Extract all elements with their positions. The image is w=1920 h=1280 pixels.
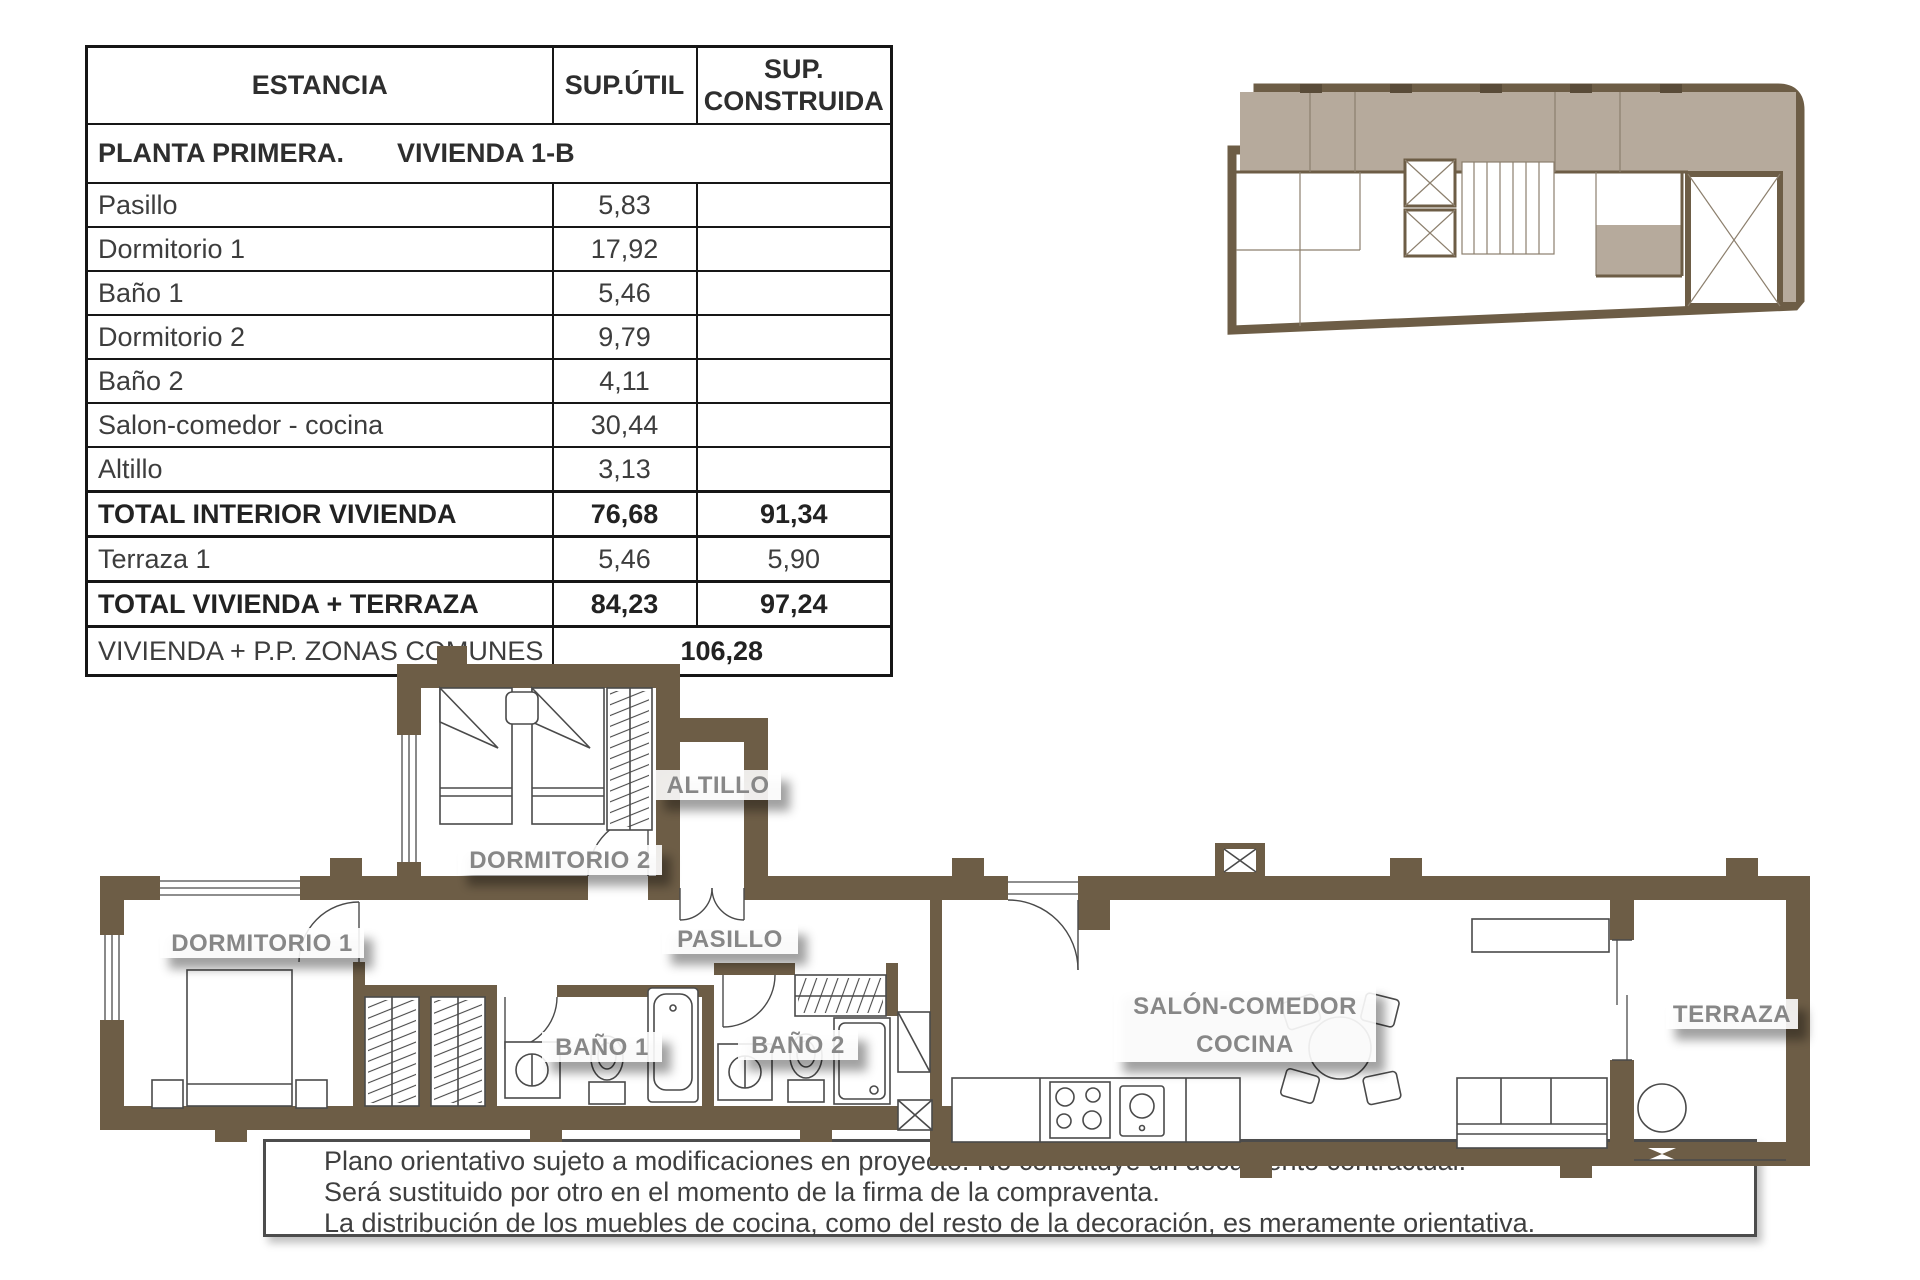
svg-text:BAÑO 1: BAÑO 1 [555, 1033, 649, 1061]
svg-text:COCINA: COCINA [1196, 1031, 1294, 1058]
svg-text:TERRAZA: TERRAZA [1673, 1001, 1791, 1028]
wardrobe-icon [607, 688, 652, 830]
svg-text:DORMITORIO 1: DORMITORIO 1 [171, 930, 353, 957]
key-plan [1232, 84, 1800, 330]
sofa-icon [1457, 1078, 1607, 1148]
pantry-cabinet-icon [898, 1012, 932, 1130]
window-icon [397, 735, 421, 862]
nightstand-icon [506, 692, 538, 724]
double-bed-icon [152, 970, 327, 1108]
floor-plan-drawing: DORMITORIO 1 DORMITORIO 2 ALTILLO PASILL… [0, 0, 1920, 1280]
room-label-terraza: TERRAZA [1666, 999, 1798, 1029]
vent-shaft-icon [1215, 843, 1265, 876]
room-label-dormitorio1: DORMITORIO 1 [160, 928, 364, 958]
courtyard-icon [1688, 174, 1780, 306]
linen-closet-icon [795, 975, 886, 1016]
room-label-salon: SALÓN-COMEDOR COCINA [1114, 986, 1376, 1062]
svg-text:BAÑO 2: BAÑO 2 [751, 1031, 845, 1059]
room-label-altillo: ALTILLO [655, 770, 781, 800]
svg-text:SALÓN-COMEDOR: SALÓN-COMEDOR [1133, 992, 1357, 1020]
floorplan-page: ESTANCIA SUP.ÚTIL SUP. CONSTRUIDA PLANTA… [0, 0, 1920, 1280]
key-plan-unit-highlight [1240, 92, 1796, 172]
washer-icon [1638, 1084, 1686, 1132]
single-bed-icon [440, 688, 512, 824]
door-icon-bano2 [723, 975, 775, 1027]
svg-text:PASILLO: PASILLO [677, 926, 783, 953]
kitchen-counter-icon [952, 1078, 1240, 1142]
window-icon [100, 935, 124, 1020]
sideboard-icon [1472, 919, 1609, 952]
door-icon-entrance [1008, 882, 1078, 970]
main-floor-plan: DORMITORIO 1 DORMITORIO 2 ALTILLO PASILL… [100, 646, 1810, 1178]
wardrobe-icon [431, 997, 485, 1106]
single-bed-icon [532, 688, 604, 824]
room-label-bano2: BAÑO 2 [738, 1030, 858, 1060]
sliding-door-icon [1612, 940, 1632, 1060]
room-label-dormitorio2: DORMITORIO 2 [458, 845, 662, 875]
window-icon [160, 876, 300, 900]
stairs-icon [1462, 162, 1554, 254]
key-plan-unit-highlight-room [1596, 225, 1682, 276]
room-label-pasillo: PASILLO [662, 924, 798, 954]
room-label-bano1: BAÑO 1 [542, 1032, 662, 1062]
wardrobe-icon [365, 997, 419, 1106]
svg-text:ALTILLO: ALTILLO [666, 772, 769, 799]
double-door-icon-altillo [680, 888, 744, 920]
svg-text:DORMITORIO 2: DORMITORIO 2 [469, 847, 651, 874]
